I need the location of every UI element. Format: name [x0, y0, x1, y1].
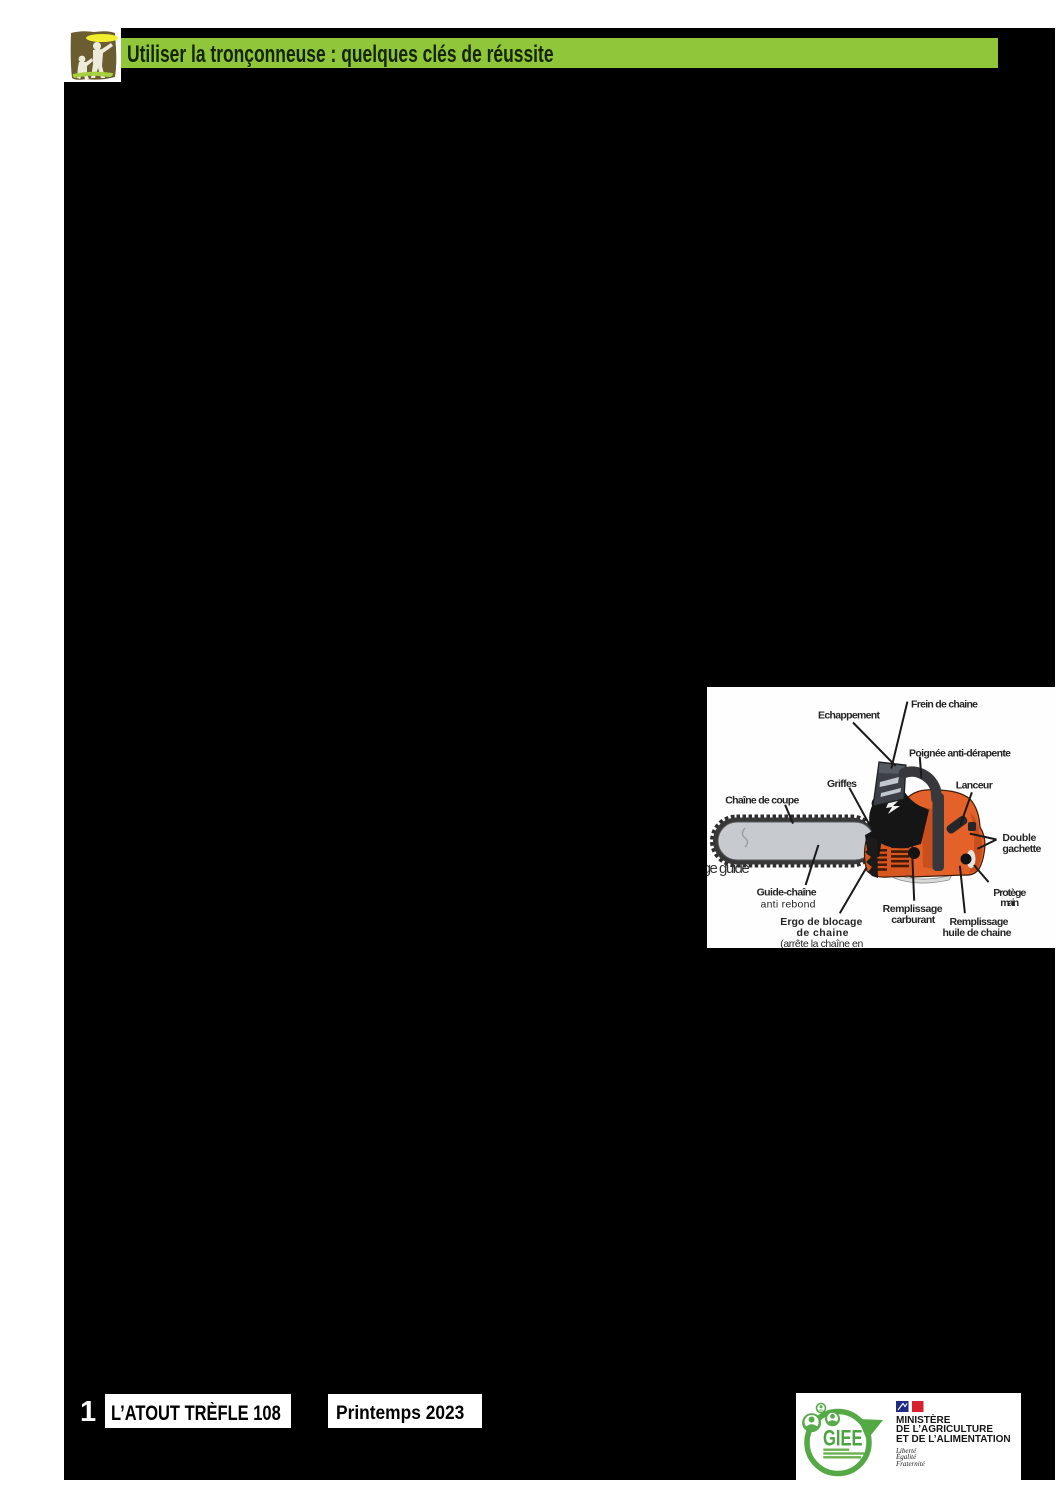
svg-text:(arrête la chaîne en: (arrête la chaîne en: [780, 938, 863, 948]
svg-text:ge guide: ge guide: [707, 860, 750, 877]
svg-text:Frein de chaine: Frein de chaine: [911, 698, 978, 710]
svg-text:Chaîne de coupe: Chaîne de coupe: [725, 795, 799, 807]
svg-text:main: main: [1000, 897, 1019, 909]
svg-text:Guide-chaîne: Guide-chaîne: [757, 886, 817, 898]
svg-text:gachette: gachette: [1002, 843, 1041, 855]
svg-text:Lanceur: Lanceur: [956, 780, 993, 792]
svg-text:Griffes: Griffes: [827, 778, 857, 790]
svg-text:Poignée anti-dérapente: Poignée anti-dérapente: [909, 748, 1011, 760]
svg-text:carburant: carburant: [891, 914, 936, 926]
svg-text:huile de chaine: huile de chaine: [943, 927, 1012, 939]
svg-text:Echappement: Echappement: [818, 710, 881, 722]
svg-text:anti rebond: anti rebond: [761, 898, 816, 910]
svg-text:GIEE: GIEE: [823, 1426, 863, 1451]
